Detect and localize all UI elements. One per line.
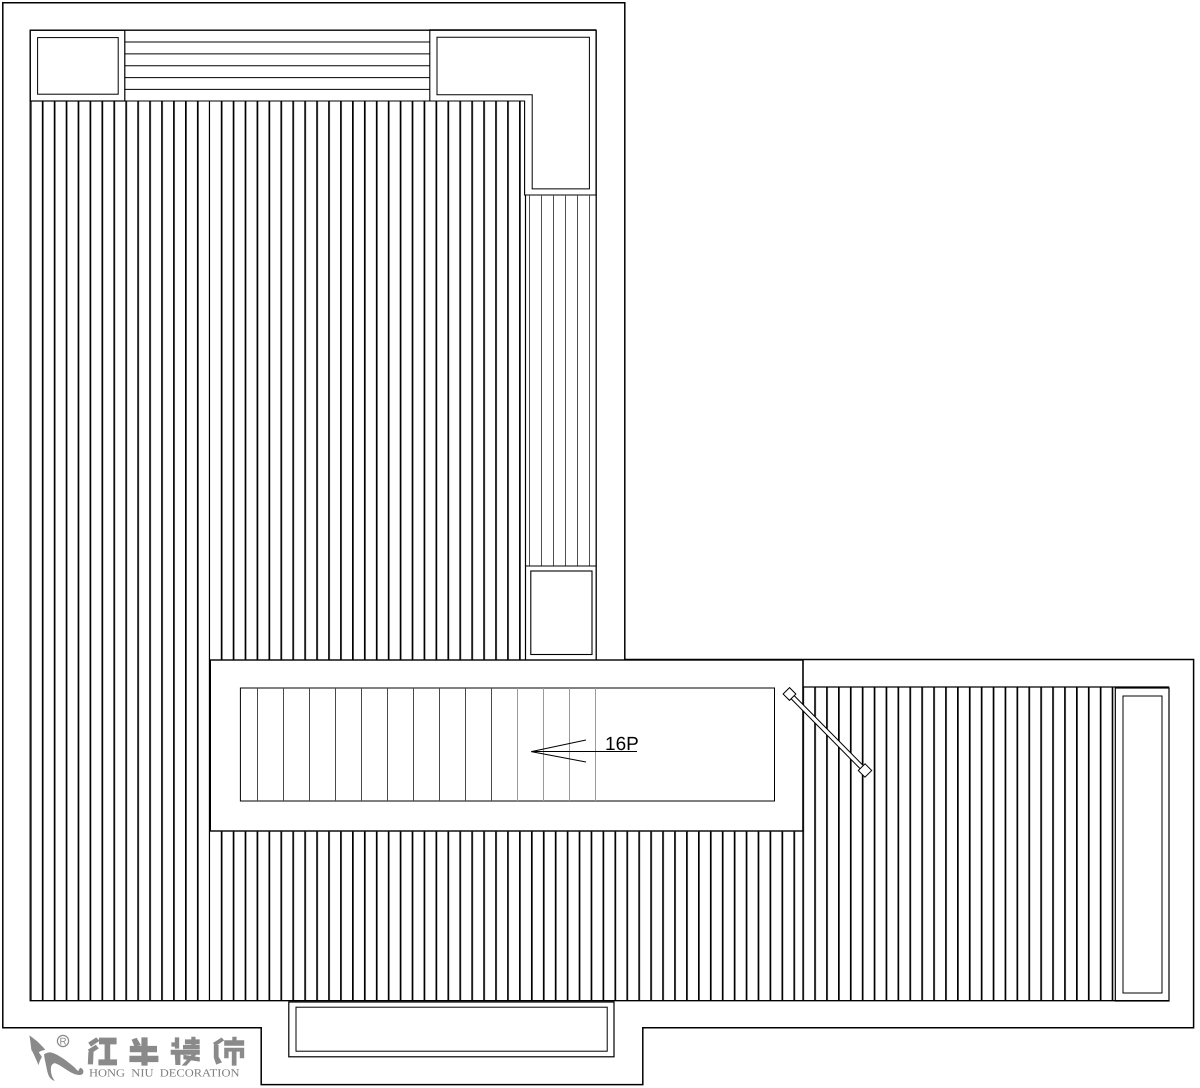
svg-text:R: R: [59, 1037, 66, 1048]
svg-text:16P: 16P: [605, 734, 639, 755]
svg-text:HONG NIU DECORATION: HONG NIU DECORATION: [89, 1067, 240, 1079]
